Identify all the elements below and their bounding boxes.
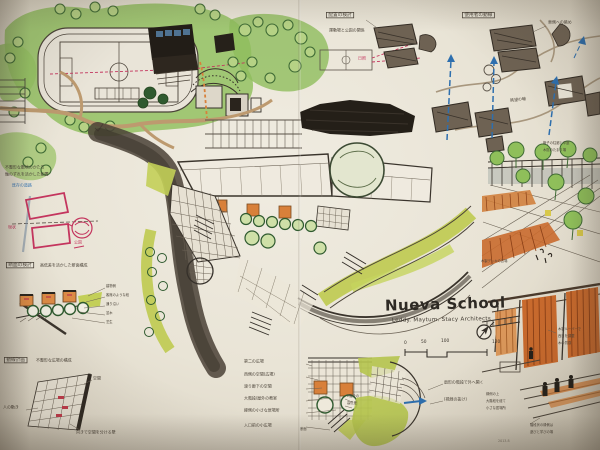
circulation-space-note: 空間 [93,377,101,381]
veranda-note-b1: 階段状の縁側は [530,424,553,427]
plaza-item-1: 第二の広場 [244,360,264,364]
plaza-item-5: 縁側の小さな居場所 [244,409,280,413]
court-caption: 木製デッキの広場 [481,260,507,263]
veranda-note-r3: 木の質感 [558,342,571,345]
veranda-note-l3: 小さな居場所 [486,407,506,410]
section-panel-label: 断面の検討 [6,262,34,268]
sunlight-note: 日照 [358,57,366,61]
flow-study-diagram [432,20,600,152]
veranda-note-b2: 遊びと学びの場 [530,431,553,434]
circulation-detail-diagram [26,374,92,430]
scale-tick-end: 120 [492,340,500,345]
circulation-panel-label: 動線計画 [4,357,27,363]
plaza-right-note-1: 2階分の [347,395,359,398]
sketch-photo: Nueva School Leddy. Maytum. Stacy Archit… [0,0,600,450]
court-note-1: 格子の柱廊と中庭 [543,142,569,145]
date-note: 2013.8 [498,440,510,443]
section-ann-5: 芝生 [106,321,113,324]
court-note-2: 木陰のたまり場 [543,149,566,152]
section-ann-1: 建物側 [106,285,116,288]
plaza-right-note-2: 高低差 [347,402,357,405]
circulation-people-note: 人の動き [3,406,19,410]
scale-bar [405,349,487,357]
sketch-artwork [0,0,600,450]
section-ann-3: 通り沿い [106,303,119,306]
open-direction-arrow [404,397,427,405]
fan-note-2: (視線の抜け) [444,398,467,402]
compass-n-label: N [492,325,494,328]
siteaxis-note-1: 不整形な敷地のかたち [5,166,45,170]
section-ann-4: 並木 [106,312,113,315]
site-axis-diagram [12,193,98,252]
scale-tick-100: 100 [441,339,449,344]
plaza-item-6: 入口前の小広場 [244,424,272,428]
layout-panel-note: 運動場と公園の関係 [329,29,365,33]
scale-tick-50: 50 [421,340,427,345]
section-panel-note: 高低差を活かした断面構成 [40,264,88,268]
layout-panel-label: 配置の検討 [326,12,354,18]
veranda-note-l1: 縁側の上 [486,393,499,396]
scale-tick-0: 0 [404,341,407,346]
veranda-note-r1: 木製ルーバーで [558,328,581,331]
section-study-diagram [16,288,105,334]
siteaxis-note-2: 軸のずれを活かした配置 [5,173,49,177]
existing-road-note: 既存の道路 [12,184,32,188]
veranda-note-l2: 大階段を経て [486,400,506,403]
view-note: 東側への眺め [548,21,572,25]
section-ann-2: 客席のような段 [106,294,129,297]
current-state-tag: 現状 [8,226,16,230]
fan-stair-diagram [352,356,443,446]
plaza-item-3: 渡り廊下の空間 [244,385,272,389]
plaza-item-2: 西側の空間(広場) [244,373,275,377]
flow-panel-label: 使用者の動線 [462,12,495,18]
project-title: Nueva School [385,295,506,314]
plaza-item-4: 大階段/屋外の教室 [244,397,277,401]
circulation-panel-note: 不整形な広場の構成 [36,359,72,363]
main-site-plan [98,100,474,368]
circulation-wall-note: 向きで空間を分ける壁 [76,431,116,435]
veranda-note-r2: 西日を調整 [558,335,575,338]
fan-note-1: 扇形の階段で外へ開く [444,381,484,385]
courtyard-perspective [482,141,600,288]
park-tag: 公園 [74,241,82,245]
plaza-section-tag: 断面 [300,428,307,431]
